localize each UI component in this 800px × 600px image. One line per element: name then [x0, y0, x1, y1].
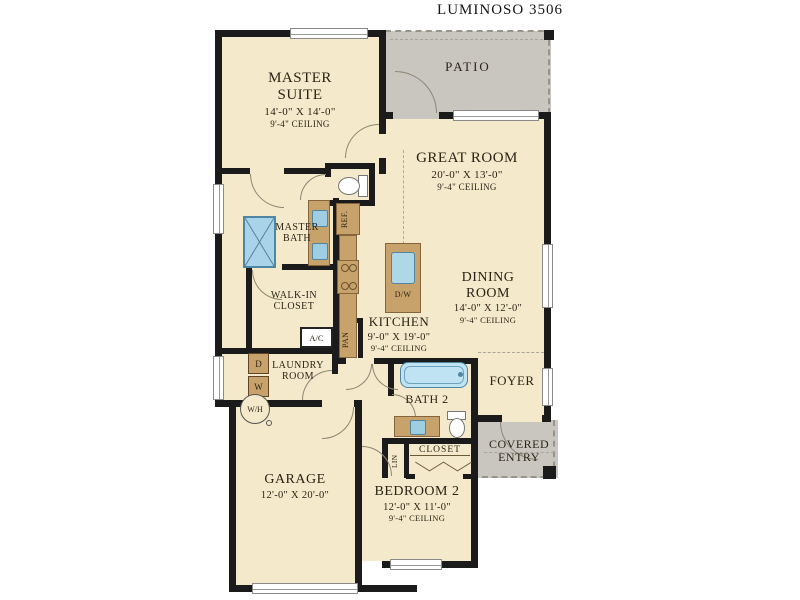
- entry-post: [543, 466, 556, 479]
- wall: [544, 112, 551, 365]
- patio-edge-right: [548, 30, 550, 114]
- plan-title: LUMINOSO 3506: [425, 2, 575, 19]
- room-master-suite: MASTER SUITE 14'-0" X 14'-0" 9'-4" CEILI…: [222, 70, 378, 129]
- patio-edge-top: [385, 30, 554, 32]
- water-heater: W/H: [240, 394, 270, 424]
- bath2-sink: [410, 420, 426, 435]
- room-name: KITCHEN: [346, 315, 452, 330]
- room-name: DINING ROOM: [455, 270, 521, 301]
- closet-label: CLOSET: [410, 445, 470, 456]
- room-dims: 9'-0" X 19'-0": [346, 332, 452, 344]
- room-bedroom2: BEDROOM 2 12'-0" X 11'-0" 9'-4" CEILING: [364, 484, 470, 524]
- burner: [341, 264, 349, 272]
- room-kitchen: KITCHEN 9'-0" X 19'-0" 9'-4" CEILING: [346, 315, 452, 354]
- room-name: MASTER SUITE: [252, 70, 348, 104]
- garage-door: [252, 583, 358, 594]
- window: [542, 368, 553, 406]
- door-gap: [379, 134, 386, 158]
- room-dims: 20'-0" X 13'-0": [393, 169, 541, 181]
- master-sink-2: [312, 243, 328, 260]
- ac-unit: A/C: [300, 327, 333, 348]
- wall: [463, 474, 472, 479]
- room-name: FOYER: [482, 374, 542, 389]
- window: [213, 184, 224, 234]
- window: [213, 356, 224, 400]
- floor-plan: LUMINOSO 3506: [0, 0, 800, 600]
- island-sink-dishwasher: [391, 252, 415, 284]
- room-name: BATH 2: [392, 393, 462, 406]
- room-dims: 14'-0" X 14'-0": [222, 106, 378, 118]
- room-great-room: GREAT ROOM 20'-0" X 13'-0" 9'-4" CEILING: [393, 150, 541, 192]
- refrigerator-label: REF.: [340, 205, 356, 233]
- tub-faucet: [458, 372, 463, 377]
- patio-post: [544, 30, 554, 40]
- wall: [229, 400, 236, 592]
- door-gap: [502, 415, 542, 422]
- door-gap: [393, 112, 439, 119]
- window: [542, 244, 553, 308]
- window-sliding-door: [453, 110, 539, 121]
- room-garage: GARAGE 12'-0" X 20'-0": [238, 472, 352, 501]
- patio-edge-inner: [390, 39, 548, 40]
- room-ceiling: 9'-4" CEILING: [364, 514, 470, 524]
- wall: [471, 358, 478, 422]
- wall: [406, 474, 415, 479]
- room-ceiling: 9'-4" CEILING: [346, 344, 452, 354]
- room-name: COVERED ENTRY: [489, 438, 549, 465]
- room-name: WALK-IN CLOSET: [266, 290, 322, 312]
- toilet: [338, 177, 360, 195]
- linen-label: LIN: [390, 446, 403, 476]
- room-ceiling: 9'-4" CEILING: [393, 182, 541, 192]
- room-ceiling: 9'-4" CEILING: [222, 119, 378, 129]
- room-name: PATIO: [400, 60, 536, 75]
- window: [290, 28, 368, 39]
- wall: [355, 400, 362, 592]
- room-dims: 12'-0" X 11'-0": [364, 502, 470, 514]
- room-bath2: BATH 2: [392, 393, 462, 406]
- valve-dot: [266, 420, 272, 426]
- burner: [349, 264, 357, 272]
- room-name: BEDROOM 2: [364, 484, 470, 500]
- room-laundry: LAUNDRY ROOM: [262, 360, 334, 382]
- room-name: MASTER BATH: [271, 222, 323, 244]
- ceiling-break-line: [478, 352, 544, 353]
- room-patio: PATIO: [400, 60, 536, 75]
- toilet: [449, 418, 465, 438]
- wall: [382, 438, 478, 444]
- dishwasher-label: D/W: [386, 290, 420, 299]
- room-name: LAUNDRY ROOM: [271, 360, 325, 382]
- window: [390, 559, 442, 570]
- room-name: GARAGE: [238, 472, 352, 488]
- room-walk-in-closet: WALK-IN CLOSET: [252, 290, 336, 312]
- wall: [379, 158, 386, 174]
- room-master-bath: MASTER BATH: [260, 222, 334, 244]
- wall: [221, 348, 338, 354]
- room-dims: 12'-0" X 20'-0": [238, 490, 352, 502]
- room-name: GREAT ROOM: [393, 150, 541, 167]
- room-covered-entry: COVERED ENTRY: [482, 438, 556, 465]
- wall: [325, 163, 375, 169]
- wall: [369, 163, 375, 206]
- burner: [349, 282, 357, 290]
- wall: [404, 444, 409, 478]
- room-foyer: FOYER: [482, 374, 542, 389]
- burner: [341, 282, 349, 290]
- door-gap: [322, 400, 354, 407]
- room-dims: 14'-0" X 12'-0": [435, 303, 541, 315]
